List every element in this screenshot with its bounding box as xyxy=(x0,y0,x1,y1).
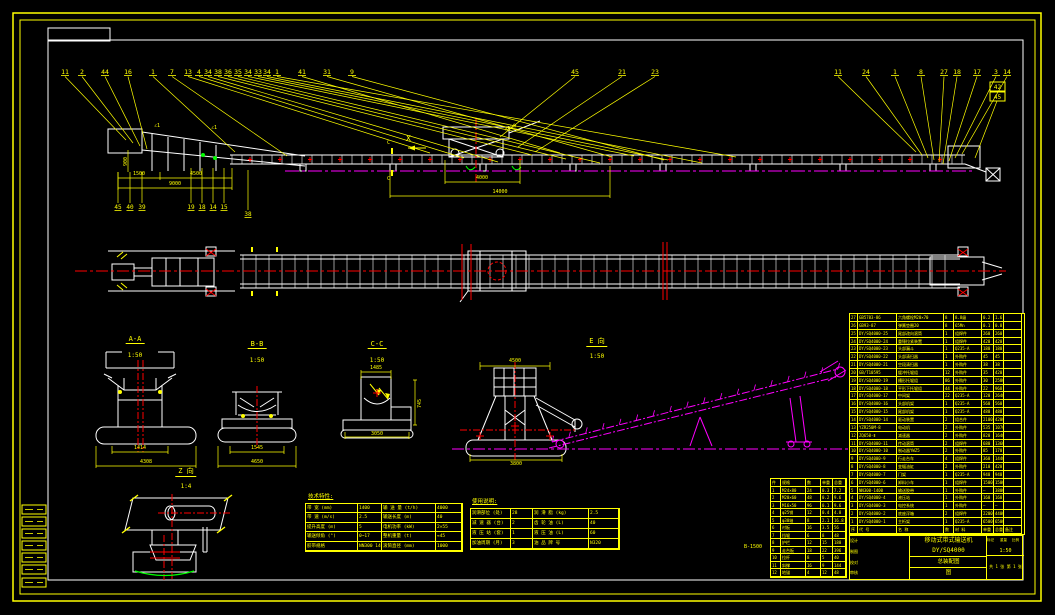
table-cell: 1 xyxy=(850,518,858,526)
table-cell: 40 xyxy=(589,519,619,529)
view-E-scale: 1:50 xyxy=(590,353,604,360)
table-cell: 减 速 器 (台) xyxy=(471,519,511,529)
leader-number: 7 xyxy=(170,68,174,76)
table-cell: 2 xyxy=(944,432,954,440)
section-CC-drawing xyxy=(341,377,413,438)
table-cell: 1500 xyxy=(994,479,1004,487)
leader-number: 36 xyxy=(224,68,232,76)
table-cell xyxy=(1004,369,1022,377)
table-cell: 制动器YWZ5 xyxy=(897,447,944,455)
table-cell xyxy=(1004,455,1022,463)
table-cell: 180 xyxy=(982,345,994,353)
table-cell: 斜撑 xyxy=(781,562,806,570)
under-leader-number: 19 xyxy=(187,204,195,211)
table-cell: 变幅油缸 xyxy=(897,463,944,471)
leader-number: 4 xyxy=(197,68,201,76)
table-cell: 代 号 xyxy=(858,526,897,534)
table-cell: 输送胶带 xyxy=(897,487,944,495)
under-leader-number: 45 xyxy=(114,204,122,211)
table-cell: 3.5 xyxy=(821,524,833,532)
leader-number: 17 xyxy=(973,68,981,76)
leader-number: 11 xyxy=(834,68,842,76)
table-cell: 空段清扫器 xyxy=(897,361,944,369)
table-cell: 卸料小车 xyxy=(897,479,944,487)
table-cell: 12 xyxy=(806,539,821,547)
table-cell: 0.1 xyxy=(821,502,833,510)
bill-of-materials-table: 27GB5783-86六角螺栓M20×7088.8级0.21.626GB93-8… xyxy=(849,313,1025,535)
table-cell: 槽形托辊组 xyxy=(897,377,944,385)
table-cell: Q235-A xyxy=(954,471,982,479)
tech-characteristics-table: 带 宽 (mm)1400输 送 量 (t/h)4000带 速 (m/s)2.5输… xyxy=(305,503,463,552)
table-cell: M24×80 xyxy=(781,487,806,495)
table-cell: DY/SQ4000-21 xyxy=(858,361,897,369)
table-cell: 胶带规格 xyxy=(306,542,358,551)
table-cell: 1000 xyxy=(436,542,462,551)
table-cell xyxy=(886,558,908,569)
leader-number: 34 xyxy=(263,68,271,76)
table-cell: 24 xyxy=(850,338,858,346)
table-cell: 减速器 xyxy=(897,432,944,440)
table-cell: 齿 轮 油 (L) xyxy=(533,519,589,529)
table-cell: 4400 xyxy=(994,510,1004,518)
table-cell: 走台板 xyxy=(781,547,806,555)
table-cell: 2×55 xyxy=(436,523,462,532)
table-cell: 5 xyxy=(771,517,781,525)
table-cell: 260 xyxy=(982,330,994,338)
table-cell: 2 xyxy=(771,494,781,502)
table-cell xyxy=(1004,432,1022,440)
view-x-marker: X xyxy=(406,134,411,143)
table-cell: 15 xyxy=(850,408,858,416)
table-cell: 144 xyxy=(833,562,846,570)
table-cell: DY/SQ4000-17 xyxy=(858,392,897,400)
table-cell: 18 xyxy=(850,385,858,393)
leader-number: 1 xyxy=(151,68,155,76)
table-cell: 8 xyxy=(944,314,954,322)
dim-900-vertical: 900 xyxy=(124,157,129,166)
table-cell xyxy=(1004,510,1022,518)
table-cell: 5 xyxy=(821,554,833,562)
table-cell: 28 xyxy=(511,509,533,519)
table-cell: 12 xyxy=(821,569,833,577)
table-cell: 滚筒直径 (mm) xyxy=(382,542,436,551)
leader-number: 31 xyxy=(323,68,331,76)
table-cell: 120 xyxy=(982,392,994,400)
table-cell: 外购件 xyxy=(954,385,982,393)
table-cell: 油 品 牌 号 xyxy=(533,539,589,549)
table-cell: 1 xyxy=(944,345,954,353)
table-cell: 30 xyxy=(982,377,994,385)
table-cell: 输送倾角 (°) xyxy=(306,532,358,541)
doc-type: 总装配图 xyxy=(910,557,987,568)
table-cell: 18 xyxy=(806,547,821,555)
table-cell: DY/SQ4000-18 xyxy=(858,385,897,393)
table-cell: 护栏 xyxy=(781,539,806,547)
table-cell: 名 称 xyxy=(897,526,944,534)
table-cell: 19 xyxy=(850,377,858,385)
table-cell: 重锤拉紧装置 xyxy=(897,338,944,346)
table-cell: 电动机 xyxy=(897,424,944,432)
table-cell: Q235-A xyxy=(954,392,982,400)
table-cell: 头部机架 xyxy=(897,400,944,408)
table-cell: 10 xyxy=(771,554,781,562)
table-cell xyxy=(1004,471,1022,479)
table-cell: DY/SQ4000-3 xyxy=(858,502,897,510)
table-cell: NN300 1400×6 xyxy=(358,542,382,551)
leader-number: 1 xyxy=(893,68,897,76)
table-cell: 1 xyxy=(944,487,954,495)
table-cell: 10 xyxy=(850,447,858,455)
table-cell: 4 xyxy=(944,455,954,463)
table-cell: 48 xyxy=(833,532,846,540)
table-cell: NN300-1400 xyxy=(858,487,897,495)
table-cell: 外购件 xyxy=(954,424,982,432)
table-cell: 外购件 xyxy=(954,463,982,471)
table-cell: 680 xyxy=(982,440,994,448)
table-cell: 外购件 xyxy=(954,432,982,440)
table-cell: 65Mn xyxy=(954,322,982,330)
table-cell: 12 xyxy=(944,369,954,377)
table-cell: 45 xyxy=(994,353,1004,361)
table-cell: 420 xyxy=(994,463,1004,471)
table-cell: 38 xyxy=(994,361,1004,369)
view-E-drawing xyxy=(466,368,582,456)
table-cell: 外购件 xyxy=(954,502,982,510)
slope-mark-2: ∠1 xyxy=(211,126,217,131)
table-cell: 8 xyxy=(944,322,954,330)
left-table-note: B-1500 xyxy=(744,545,762,550)
usage-notes-table: 润滑部位 (处)28润 滑 脂 (kg)2.5减 速 器 (台)2齿 轮 油 (… xyxy=(470,508,620,550)
table-cell: 48 xyxy=(806,494,821,502)
table-cell: 缓冲托辊组 xyxy=(897,369,944,377)
table-cell: 38 xyxy=(982,361,994,369)
table-cell: 4 xyxy=(806,569,821,577)
under-leader-number: 15 xyxy=(220,204,228,211)
table-cell xyxy=(866,558,886,569)
table-cell: 行走台车 xyxy=(897,455,944,463)
table-cell: 平形下托辊组 xyxy=(897,385,944,393)
table-cell: 整机重量 (t) xyxy=(382,532,436,541)
detail-Z-scale: 1:4 xyxy=(181,483,192,490)
table-cell: 3800 xyxy=(994,487,1004,495)
table-cell: 21 xyxy=(850,361,858,369)
lub-table-title: 使用说明: xyxy=(472,497,497,505)
table-cell: DY/SQ4000-4 xyxy=(858,494,897,502)
table-cell: DY/SQ4000-16 xyxy=(858,400,897,408)
table-cell: 头部清扫器 xyxy=(897,353,944,361)
table-cell: 16 xyxy=(850,400,858,408)
leader-number: 16 xyxy=(124,68,132,76)
table-cell: 驱动装置 xyxy=(897,416,944,424)
table-cell: 11 xyxy=(850,440,858,448)
table-cell: YZR250M-8 xyxy=(858,424,897,432)
table-cell: 组合件 xyxy=(954,416,982,424)
table-cell: 数 xyxy=(944,526,954,534)
table-cell: 4 xyxy=(850,494,858,502)
table-cell: — xyxy=(982,487,994,495)
table-cell xyxy=(1004,322,1022,330)
table-cell: 85 xyxy=(982,447,994,455)
title-block: 设计制图校对审核 移动式带式输送机 DY/SQ4000 总装配图 图 标记重量比… xyxy=(849,535,1023,580)
table-cell: 940 xyxy=(994,471,1004,479)
table-cell: 0.8 xyxy=(994,322,1004,330)
table-cell: 2 xyxy=(944,447,954,455)
leader-number: 11 xyxy=(61,68,69,76)
table-cell: 7 xyxy=(771,532,781,540)
table-cell xyxy=(1004,440,1022,448)
table-cell: 2.5 xyxy=(589,509,619,519)
table-cell: 电机功率 (kW) xyxy=(382,523,436,532)
section-BB-label: B-B xyxy=(248,340,267,349)
doc-extra: 图 xyxy=(910,568,987,579)
table-cell: DY/SQ4000-24 xyxy=(858,338,897,346)
table-cell: DY/SQ4000-14 xyxy=(858,416,897,424)
table-cell: 比例 xyxy=(1012,536,1024,546)
table-cell: 2 xyxy=(944,424,954,432)
table-cell: 3 xyxy=(771,502,781,510)
table-cell: 地锚 xyxy=(781,569,806,577)
table-cell: 重量 xyxy=(1000,536,1012,546)
table-cell: Q235-A xyxy=(954,408,982,416)
table-cell: DY/SQ4000-19 xyxy=(858,377,897,385)
table-cell xyxy=(1004,377,1022,385)
table-cell: 主桁架 xyxy=(897,518,944,526)
section-AA-centerline xyxy=(138,360,143,452)
table-cell: 40 xyxy=(436,513,462,522)
table-cell: 2.1 xyxy=(821,517,833,525)
table-cell: 弹簧垫圈20 xyxy=(897,322,944,330)
table-cell: 14 xyxy=(850,416,858,424)
section-CC-arrows xyxy=(370,384,390,399)
table-cell: 润滑部位 (处) xyxy=(471,509,511,519)
table-cell: 尾部机架 xyxy=(897,408,944,416)
section-AA-dims xyxy=(96,390,196,468)
table-cell: 六角螺栓M20×70 xyxy=(897,314,944,322)
table-cell: DY/SQ4000-8 xyxy=(858,463,897,471)
table-cell: 液 压 油 (L) xyxy=(533,529,589,539)
table-cell: 1 xyxy=(944,518,954,526)
table-cell: 420 xyxy=(982,338,994,346)
table-cell: 门架 xyxy=(897,471,944,479)
table-cell: 中间架 xyxy=(897,392,944,400)
table-cell xyxy=(1004,463,1022,471)
table-cell: 9.6 xyxy=(833,494,846,502)
table-cell: 衬板 xyxy=(781,524,806,532)
table-cell: 电控系统 xyxy=(897,502,944,510)
table-cell: 2 xyxy=(944,416,954,424)
table-cell: 360 xyxy=(982,455,994,463)
dim-1500: 1500 xyxy=(133,172,145,177)
table-cell: 总重 xyxy=(833,479,846,487)
table-cell: 1 xyxy=(944,408,954,416)
leader-number: 45 xyxy=(571,68,579,76)
table-cell xyxy=(886,568,908,579)
table-cell xyxy=(1004,416,1022,424)
table-cell: 968 xyxy=(994,385,1004,393)
table-cell: 180 xyxy=(833,539,846,547)
table-cell: 设计 xyxy=(850,536,866,547)
table-cell: 12 xyxy=(806,509,821,517)
table-cell: 22 xyxy=(982,385,994,393)
table-cell: 尾部改向滚筒 xyxy=(897,330,944,338)
view-E-label: E 向 xyxy=(586,336,607,347)
table-cell: 液压站 xyxy=(897,494,944,502)
table-cell: 8 xyxy=(821,532,833,540)
table-cell: 1 xyxy=(944,479,954,487)
table-cell: 4 xyxy=(771,509,781,517)
table-cell: 1 xyxy=(944,494,954,502)
table-cell: 单重 xyxy=(982,526,994,534)
cad-drawing-canvas: 1124416171343438363534333414131945212311… xyxy=(0,0,1055,615)
table-cell xyxy=(1004,353,1022,361)
leader-number: 41 xyxy=(298,68,306,76)
table-cell: 数 xyxy=(806,479,821,487)
table-cell: 加油周期 (月) xyxy=(471,539,511,549)
table-cell: 2100 xyxy=(982,416,994,424)
table-cell: 头部漏斗 xyxy=(897,345,944,353)
detail-Z-centerlines xyxy=(150,494,232,580)
table-cell: 1 xyxy=(771,487,781,495)
table-cell: 20 xyxy=(850,369,858,377)
table-cell xyxy=(1004,424,1022,432)
table-cell: DY/SQ4000-11 xyxy=(858,440,897,448)
table-cell: 输送长度 (m) xyxy=(382,513,436,522)
table-cell: 传动滚筒 xyxy=(897,440,944,448)
table-cell: 外购件 xyxy=(954,487,982,495)
table-cell: DY/SQ4000-7 xyxy=(858,471,897,479)
leader-callouts: 1124416171343438363534333414131945212311… xyxy=(61,68,1011,218)
table-cell: DY/SQ4000-22 xyxy=(858,353,897,361)
table-cell xyxy=(1004,487,1022,495)
table-cell xyxy=(1004,361,1022,369)
table-cell: 0.3 xyxy=(821,487,833,495)
table-cell: 22 xyxy=(821,547,833,555)
aa-dim-outer: 4308 xyxy=(140,460,152,465)
mark-header-row: 标记重量比例 xyxy=(987,536,1024,546)
table-cell: GB5783-86 xyxy=(858,314,897,322)
section-AA-label: A-A xyxy=(126,335,145,344)
section-CC-scale: 1:50 xyxy=(370,357,384,364)
table-cell: 160 xyxy=(994,494,1004,502)
table-cell: 5 xyxy=(358,523,382,532)
table-cell: 4200 xyxy=(994,416,1004,424)
table-cell: DY/SQ4000-1 xyxy=(858,518,897,526)
table-cell: 外购件 xyxy=(954,494,982,502)
table-cell: 420 xyxy=(994,338,1004,346)
table-cell xyxy=(1004,400,1022,408)
table-cell xyxy=(1004,330,1022,338)
table-cell xyxy=(1004,447,1022,455)
section-AA-drawing xyxy=(96,352,196,444)
table-cell: 2640 xyxy=(994,392,1004,400)
zone-marker-boxes xyxy=(22,505,46,587)
table-cell: Q235-A xyxy=(954,345,982,353)
table-cell xyxy=(1004,345,1022,353)
table-cell xyxy=(866,547,886,558)
table-cell: N320 xyxy=(589,539,619,549)
table-cell: φ30轴 xyxy=(781,517,806,525)
table-cell: 560 xyxy=(994,400,1004,408)
table-cell: 7.2 xyxy=(833,487,846,495)
table-cell: 1070 xyxy=(994,424,1004,432)
bb-dim-inner: 1545 xyxy=(251,446,263,451)
table-cell: 带 速 (m/s) xyxy=(306,513,358,522)
table-cell: 1640 xyxy=(994,432,1004,440)
table-cell: 2 xyxy=(511,519,533,529)
cc-dim-right: 745 xyxy=(418,399,423,408)
table-cell: — xyxy=(982,502,994,510)
table-cell: 48 xyxy=(833,569,846,577)
table-cell: 7 xyxy=(850,471,858,479)
table-cell: 挡辊 xyxy=(781,532,806,540)
leader-number: 27 xyxy=(940,68,948,76)
table-cell: 9 xyxy=(850,455,858,463)
tech-table-title: 技术特性: xyxy=(308,492,333,500)
signature-grid: 设计制图校对审核 xyxy=(850,536,909,579)
table-cell: 组焊件 xyxy=(954,338,982,346)
leader-number: 18 xyxy=(953,68,961,76)
table-cell xyxy=(866,568,886,579)
table-cell: 序 xyxy=(850,526,858,534)
table-cell: DY/SQ4000-10 xyxy=(858,447,897,455)
table-cell: — xyxy=(994,502,1004,510)
table-cell: GB/T10595 xyxy=(858,369,897,377)
table-cell: 820 xyxy=(982,432,994,440)
table-cell: Q235-A xyxy=(954,518,982,526)
table-cell: DY/SQ4000-25 xyxy=(858,330,897,338)
table-cell: 26 xyxy=(850,322,858,330)
aa-dim-inner: 1414 xyxy=(134,446,146,451)
table-cell: 0.2 xyxy=(982,314,994,322)
table-cell: 0~17 xyxy=(358,532,382,541)
table-cell: 8 xyxy=(850,463,858,471)
table-cell: 件 xyxy=(771,479,781,487)
under-leader-number: 14 xyxy=(209,204,217,211)
table-cell: 输 送 量 (t/h) xyxy=(382,504,436,513)
table-cell: 160 xyxy=(982,494,994,502)
table-cell: 420 xyxy=(994,369,1004,377)
table-cell: 0.2 xyxy=(821,494,833,502)
table-cell: 组焊件 xyxy=(954,455,982,463)
table-cell: 2 xyxy=(944,463,954,471)
cut-mark-c-top: C xyxy=(387,141,390,146)
table-cell xyxy=(1004,408,1022,416)
table-cell: ≈45 xyxy=(436,532,462,541)
table-cell: 396 xyxy=(833,547,846,555)
table-cell: 4.8 xyxy=(833,509,846,517)
table-cell: 60 xyxy=(589,529,619,539)
table-cell: 22 xyxy=(944,392,954,400)
under-leader-number: 18 xyxy=(198,204,206,211)
section-CC-dims xyxy=(345,370,417,439)
table-cell: 2 xyxy=(850,510,858,518)
table-cell: ZQ650-Ⅱ xyxy=(858,432,897,440)
detail-Z-drawing xyxy=(125,498,228,572)
table-cell: 2 xyxy=(944,510,954,518)
table-cell: 5 xyxy=(850,487,858,495)
table-cell: 16.8 xyxy=(833,517,846,525)
leader-number: 35 xyxy=(234,68,242,76)
table-cell: 2 xyxy=(944,440,954,448)
table-cell xyxy=(886,536,908,547)
leader-number: 44 xyxy=(101,68,109,76)
table-cell: 2.5 xyxy=(358,513,382,522)
table-cell: 备注 xyxy=(1004,526,1022,534)
e-dim-top: 4500 xyxy=(509,359,521,364)
leader-number: 14 xyxy=(1003,68,1011,76)
table-cell: 9.6 xyxy=(833,502,846,510)
table-cell: 560 xyxy=(982,400,994,408)
